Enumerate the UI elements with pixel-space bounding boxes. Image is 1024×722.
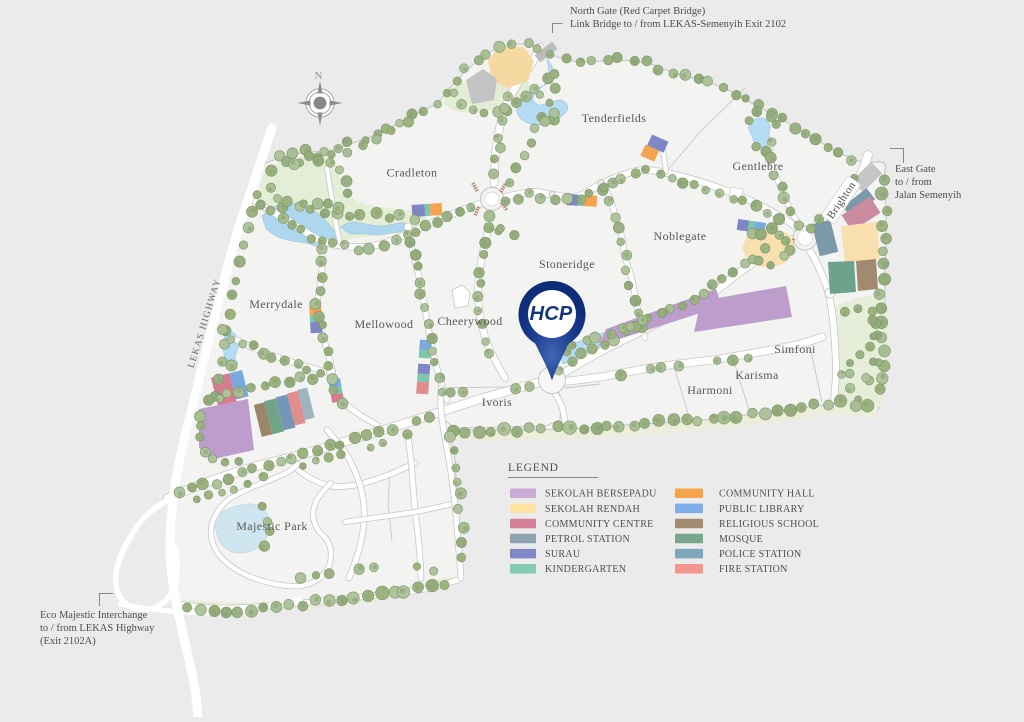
svg-text:HCP: HCP <box>530 303 573 325</box>
svg-text:to / from LEKAS Highway: to / from LEKAS Highway <box>40 623 155 634</box>
svg-text:COMMUNITY CENTRE: COMMUNITY CENTRE <box>545 519 654 530</box>
svg-text:Cheerywood: Cheerywood <box>437 314 502 328</box>
svg-text:Merrydale: Merrydale <box>249 297 303 311</box>
svg-text:N: N <box>315 70 324 82</box>
svg-text:North Gate (Red Carpet Bridge): North Gate (Red Carpet Bridge) <box>570 6 706 17</box>
svg-text:Simfoni: Simfoni <box>774 342 816 356</box>
svg-text:Ivoris: Ivoris <box>482 395 512 409</box>
svg-text:SEKOLAH RENDAH: SEKOLAH RENDAH <box>545 504 640 515</box>
svg-text:PUBLIC LIBRARY: PUBLIC LIBRARY <box>719 504 805 515</box>
svg-text:KINDERGARTEN: KINDERGARTEN <box>545 564 626 575</box>
svg-text:Tenderfields: Tenderfields <box>582 111 647 125</box>
svg-text:Mellowood: Mellowood <box>355 317 414 331</box>
svg-text:PETROL STATION: PETROL STATION <box>545 534 630 545</box>
svg-text:FIRE STATION: FIRE STATION <box>719 564 788 575</box>
svg-text:Karisma: Karisma <box>735 368 779 382</box>
svg-text:Gentlebre: Gentlebre <box>733 159 784 173</box>
svg-text:Stoneridge: Stoneridge <box>539 257 595 271</box>
svg-text:POLICE STATION: POLICE STATION <box>719 549 802 560</box>
svg-text:Harmoni: Harmoni <box>687 383 733 397</box>
svg-text:East Gate: East Gate <box>895 164 936 175</box>
svg-text:Noblegate: Noblegate <box>654 229 707 243</box>
svg-text:LEGEND: LEGEND <box>508 462 559 474</box>
svg-text:to / from: to / from <box>895 177 932 188</box>
svg-text:SURAU: SURAU <box>545 549 581 560</box>
svg-text:(Exit 2102A): (Exit 2102A) <box>40 636 96 647</box>
svg-text:SEKOLAH BERSEPADU: SEKOLAH BERSEPADU <box>545 489 657 500</box>
svg-text:COMMUNITY HALL: COMMUNITY HALL <box>719 489 815 500</box>
svg-text:Link Bridge to / from LEKAS-Se: Link Bridge to / from LEKAS-Semenyih Exi… <box>570 19 786 30</box>
svg-text:RELIGIOUS SCHOOL: RELIGIOUS SCHOOL <box>719 519 819 530</box>
svg-text:Majestic Park: Majestic Park <box>236 519 308 533</box>
svg-text:Eco Majestic Interchange: Eco Majestic Interchange <box>40 610 148 621</box>
svg-text:Jalan Semenyih: Jalan Semenyih <box>895 190 962 201</box>
svg-text:Cradleton: Cradleton <box>387 166 438 180</box>
svg-text:MOSQUE: MOSQUE <box>719 534 763 545</box>
